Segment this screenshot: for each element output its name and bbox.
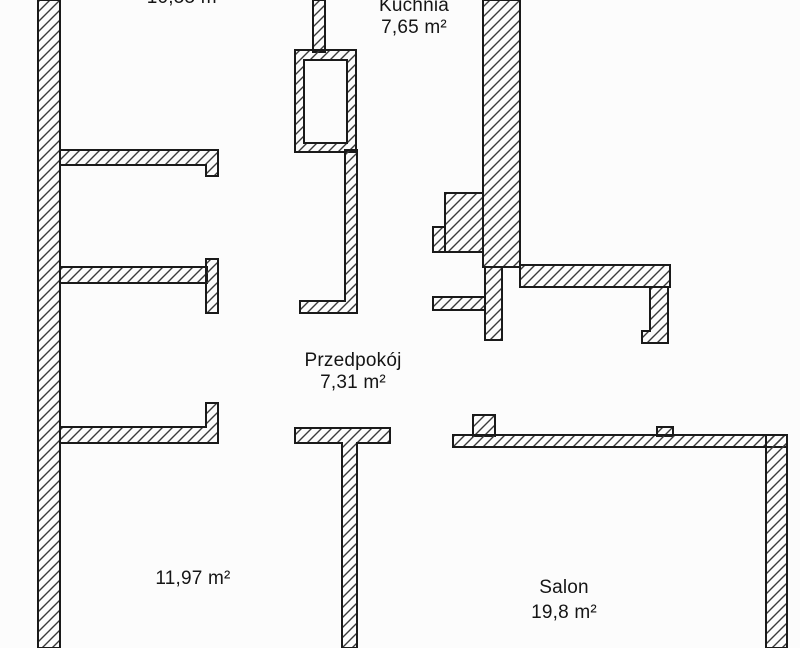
room-name-salon: Salon	[531, 575, 597, 600]
wall-kitchen-step-1	[445, 193, 483, 252]
wall-kitchen-main	[483, 0, 520, 267]
wall-kitchen-step-2	[433, 227, 445, 252]
wall-exterior-left	[38, 0, 60, 648]
wall-stub-lower-left	[60, 403, 218, 443]
room-area-przedpokoj: 7,31 m²	[304, 372, 401, 394]
floor-plan-drawing	[0, 0, 800, 648]
wall-salon-top	[453, 435, 787, 447]
room-label-przedpokoj: Przedpokój 7,31 m²	[304, 350, 401, 394]
door-jamb-middle-left	[206, 259, 218, 313]
wall-kitchen-lower	[485, 267, 502, 340]
room-label-center-area: 11,97 m²	[155, 568, 230, 590]
wall-salon-pillar	[473, 415, 495, 436]
room-name-kuchnia: Kuchnia	[379, 0, 449, 17]
door-jamb-salon-upper	[642, 287, 668, 343]
wall-kitchen-stub	[433, 297, 485, 310]
room-label-kuchnia: Kuchnia 7,65 m²	[379, 0, 449, 39]
room-label-salon: Salon 19,8 m²	[531, 575, 597, 625]
wall-stub-upper-left	[60, 150, 218, 176]
wall-entry-top	[313, 0, 325, 52]
wall-corridor-right	[520, 265, 670, 287]
room-name-przedpokoj: Przedpokój	[304, 350, 401, 372]
wall-hall-lower-tee	[295, 428, 390, 648]
floor-plan: 10,55 m² Kuchnia 7,65 m² Przedpokój 7,31…	[0, 0, 800, 648]
room-label-top-room-area: 10,55 m²	[147, 0, 224, 9]
wall-stub-middle-left	[60, 267, 207, 283]
wall-exterior-right	[766, 435, 787, 648]
room-area-salon: 19,8 m²	[531, 600, 597, 625]
ventilation-shaft	[295, 50, 356, 152]
room-area-kuchnia: 7,65 m²	[379, 17, 449, 39]
wall-hall-upper	[300, 150, 357, 313]
